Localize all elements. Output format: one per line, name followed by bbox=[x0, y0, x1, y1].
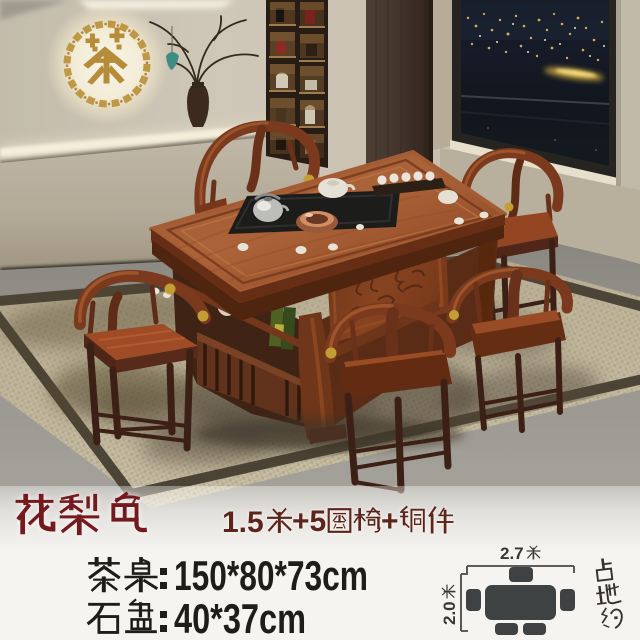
svg-text:2.7: 2.7 bbox=[500, 544, 524, 563]
svg-text:2.0: 2.0 bbox=[440, 601, 459, 625]
svg-text:40*37cm: 40*37cm bbox=[174, 595, 306, 640]
svg-text:150*80*73cm: 150*80*73cm bbox=[174, 552, 368, 599]
